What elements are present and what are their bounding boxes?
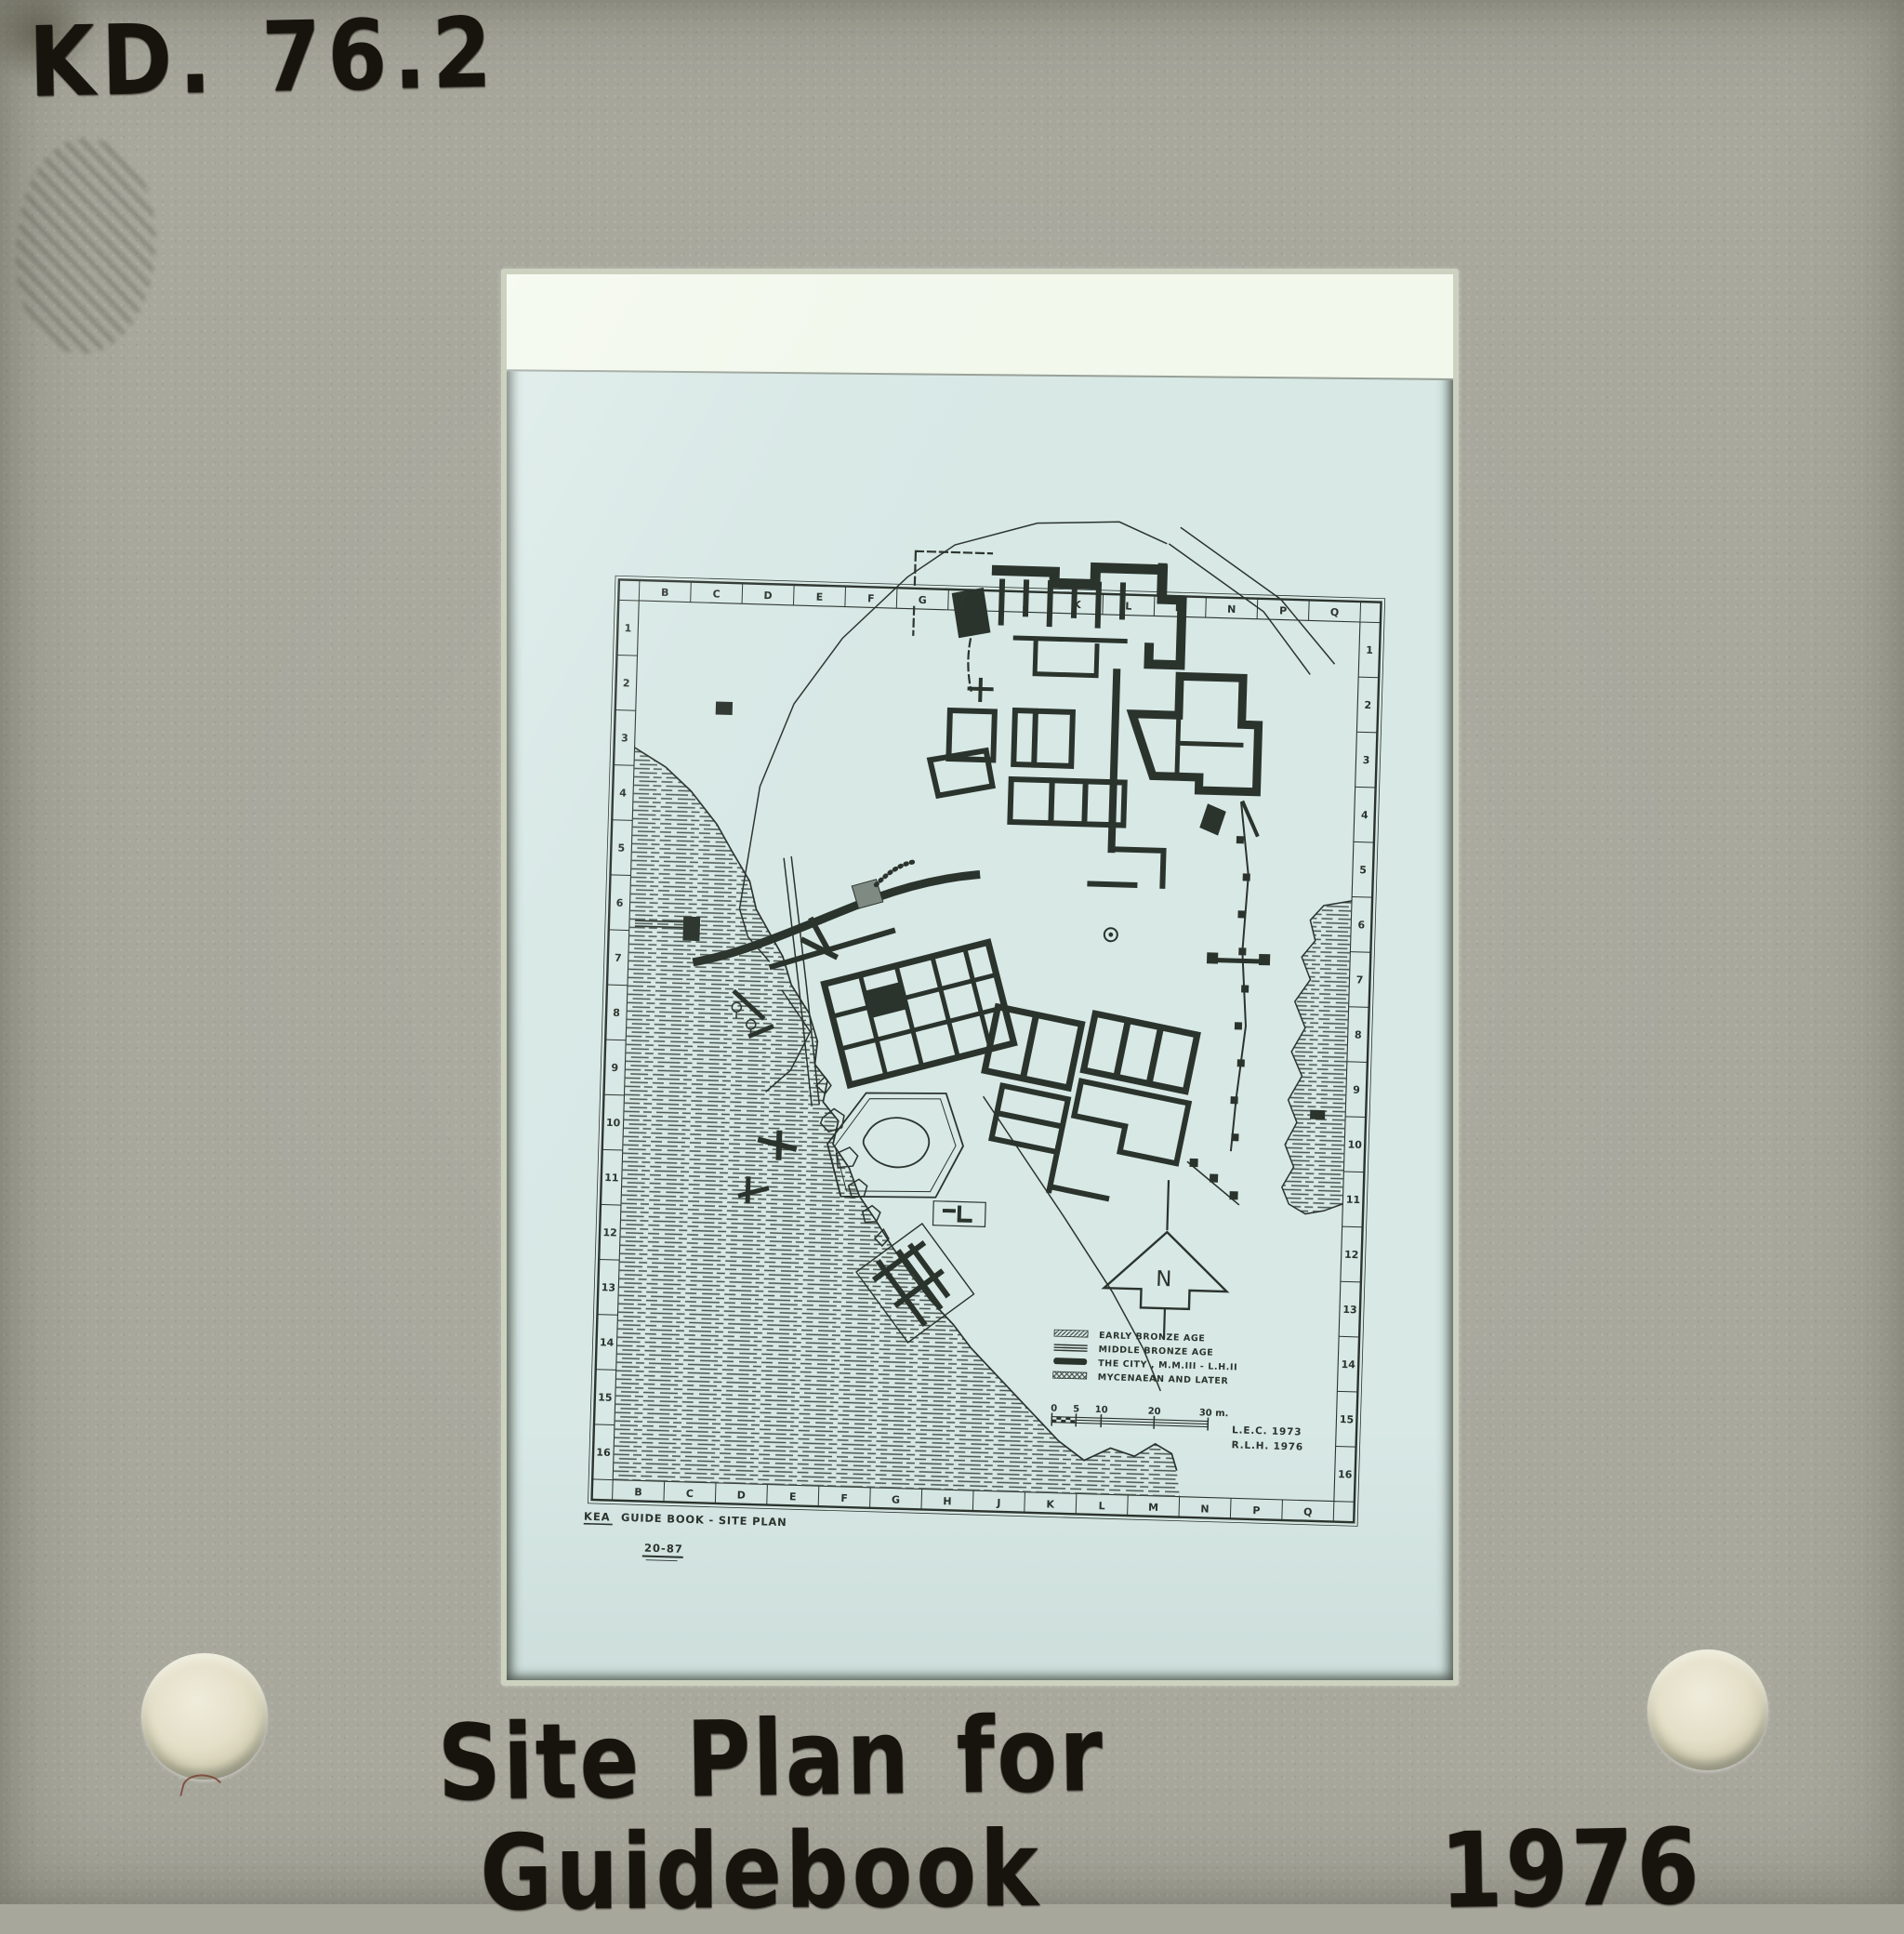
- grid-letter: C: [712, 588, 720, 600]
- grid-number: 3: [1362, 754, 1369, 766]
- grid-number: 15: [598, 1391, 613, 1403]
- spring-outline: [863, 1117, 930, 1168]
- grid-number: 5: [1359, 864, 1367, 876]
- map-legend: EARLY BRONZE AGE MIDDLE BRONZE AGE THE C…: [1053, 1330, 1239, 1387]
- grid-letter: G: [892, 1493, 900, 1505]
- grid-number: 13: [601, 1281, 615, 1293]
- grid-letter: J: [996, 1497, 1000, 1509]
- sheet-caption: KEA GUIDE BOOK - SITE PLAN 20-87: [583, 1510, 787, 1564]
- grid-number: 6: [1357, 919, 1365, 931]
- scale-label: 10: [1095, 1405, 1108, 1415]
- grid-number: 7: [615, 952, 622, 964]
- north-arrow: N: [1103, 1178, 1230, 1340]
- legend-swatch-middle-bronze: [1054, 1345, 1088, 1351]
- scale-bar: 0 5 10 20 30 m.: [1051, 1404, 1229, 1432]
- grid-number: 14: [600, 1336, 615, 1348]
- grid-number: 14: [1341, 1358, 1355, 1371]
- caption-handwriting-year: 1976: [1439, 1807, 1703, 1932]
- grid-letter: F: [867, 592, 875, 604]
- grid-number: 9: [1353, 1084, 1360, 1096]
- north-label: N: [1156, 1267, 1172, 1292]
- grid-number: 11: [604, 1172, 619, 1184]
- grid-letter: D: [737, 1490, 747, 1502]
- grid-number: 1: [1366, 644, 1373, 656]
- credit-line: R.L.H. 1976: [1231, 1439, 1303, 1452]
- slide-mount: KD. 76.2 BBCCDDEEFFGGHHJJ: [0, 0, 1904, 1904]
- site-plan-drawing: BBCCDDEEFFGGHHJJKKLLMMNNPPQQ112233445566…: [507, 274, 1453, 1680]
- grid-number: 3: [621, 732, 628, 744]
- scale-label: 5: [1073, 1404, 1079, 1414]
- thumb-hole-left: [141, 1653, 268, 1780]
- grid-number: 10: [606, 1117, 621, 1129]
- grid-letter: E: [789, 1490, 797, 1503]
- grid-letter: B: [661, 587, 669, 599]
- scale-label: 0: [1051, 1404, 1057, 1414]
- grid-letter: L: [1098, 1500, 1104, 1512]
- grid-number: 4: [1361, 809, 1368, 821]
- grid-number: 12: [602, 1226, 617, 1239]
- grid-letter: Q: [1303, 1506, 1313, 1518]
- grid-number: 15: [1340, 1413, 1355, 1425]
- scale-label: 30 m.: [1199, 1408, 1229, 1419]
- legend-label: THE CITY , M.M.III - L.H.II: [1098, 1358, 1237, 1372]
- thumb-hole-right: [1647, 1649, 1768, 1770]
- grid-number: 16: [1338, 1468, 1353, 1480]
- grid-number: 7: [1355, 974, 1363, 986]
- legend-label: EARLY BRONZE AGE: [1099, 1331, 1206, 1344]
- grid-letter: N: [1200, 1503, 1210, 1515]
- harbor-mole: [1310, 1110, 1325, 1119]
- grid-letter: F: [840, 1492, 848, 1504]
- sheet-title-rest: GUIDE BOOK - SITE PLAN: [621, 1511, 787, 1529]
- grid-letter: C: [686, 1488, 694, 1500]
- grid-letter: P: [1252, 1504, 1260, 1517]
- grid-number: 6: [616, 897, 624, 909]
- grid-letter: B: [634, 1486, 642, 1498]
- grid-letter: Q: [1330, 606, 1340, 618]
- legend-swatch-early-bronze: [1054, 1330, 1088, 1337]
- map-credits: L.E.C. 1973 R.L.H. 1976: [1231, 1424, 1303, 1452]
- grid-letter: K: [1046, 1498, 1054, 1510]
- grid-number: 2: [1364, 699, 1371, 711]
- grid-number: 2: [623, 677, 630, 689]
- legend-swatch-mycenaean: [1053, 1371, 1087, 1379]
- grid-letter: M: [1148, 1502, 1158, 1514]
- legend-row-middle-bronze: MIDDLE BRONZE AGE: [1053, 1344, 1213, 1358]
- grid-letter: H: [943, 1495, 952, 1507]
- grid-letter: N: [1227, 603, 1236, 616]
- small-annex: [932, 1201, 985, 1227]
- legend-label: MYCENAEAN AND LATER: [1098, 1372, 1229, 1386]
- sea-east: [1281, 899, 1352, 1215]
- credit-line: L.E.C. 1973: [1232, 1424, 1302, 1437]
- grid-number: 12: [1344, 1249, 1359, 1261]
- grid-number: 1: [624, 622, 631, 634]
- legend-label: MIDDLE BRONZE AGE: [1098, 1345, 1213, 1358]
- grid-number: 13: [1342, 1304, 1357, 1316]
- legend-swatch-the-city: [1053, 1358, 1087, 1365]
- scale-label: 20: [1148, 1407, 1161, 1417]
- sheet-title-kea: KEA: [584, 1510, 611, 1524]
- catalog-number-handwriting: KD. 76.2: [28, 0, 499, 119]
- grid-number: 16: [596, 1446, 611, 1458]
- legend-row-early-bronze: EARLY BRONZE AGE: [1054, 1330, 1206, 1345]
- grid-number: 9: [611, 1062, 618, 1074]
- grid-number: 8: [613, 1007, 620, 1019]
- caption-handwriting-line1: Site Plan for: [437, 1694, 1105, 1824]
- grid-number: 10: [1347, 1139, 1362, 1151]
- grid-number: 8: [1355, 1028, 1362, 1040]
- grid-number: 5: [617, 842, 625, 854]
- legend-row-mycenaean: MYCENAEAN AND LATER: [1053, 1371, 1229, 1387]
- grid-letter: D: [763, 589, 773, 602]
- grid-number: 11: [1346, 1194, 1361, 1206]
- grid-letter: E: [816, 591, 824, 603]
- ink-smudge: [3, 131, 171, 363]
- grid-letter: G: [919, 594, 927, 606]
- caption-handwriting-line2: Guidebook: [480, 1809, 1042, 1934]
- film-aperture: BBCCDDEEFFGGHHJJKKLLMMNNPPQQ112233445566…: [507, 274, 1453, 1680]
- grid-letter: L: [1125, 601, 1131, 613]
- grid-number: 4: [619, 787, 627, 799]
- grid-letter: P: [1279, 604, 1287, 616]
- legend-row-the-city: THE CITY , M.M.III - L.H.II: [1053, 1358, 1237, 1373]
- figure-number: 20-87: [644, 1542, 683, 1556]
